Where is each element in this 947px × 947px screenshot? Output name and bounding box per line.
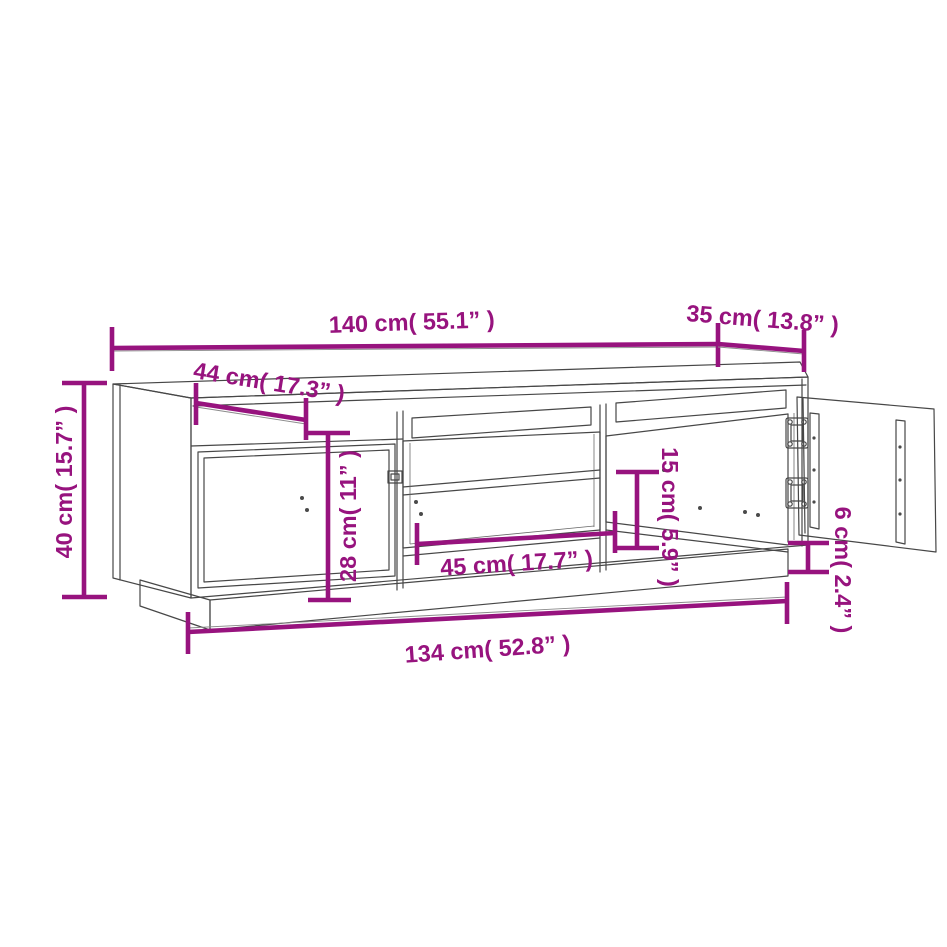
dim-label-overall-height: 40 cm( 15.7” ): [51, 406, 77, 559]
dim-label-base-width: 134 cm( 52.8” ): [404, 630, 571, 668]
furniture-dimension-diagram: 140 cm( 55.1” ) 35 cm( 13.8” ) 44 cm( 17…: [0, 0, 947, 947]
cabinet-drawing: [113, 362, 936, 630]
dim-label-right-inner-height: 15 cm( 5.9” ): [657, 447, 683, 587]
diagram-canvas: 140 cm( 55.1” ) 35 cm( 13.8” ) 44 cm( 17…: [0, 0, 947, 947]
dimension-right-inner-height: 15 cm( 5.9” ): [613, 447, 683, 587]
dimension-top-right-depth: 35 cm( 13.8” ): [685, 300, 839, 372]
cabinet-left-side: [113, 384, 191, 598]
dimension-overall-height: 40 cm( 15.7” ): [51, 383, 107, 597]
dimension-left-top-depth: 44 cm( 17.3” ): [192, 357, 347, 440]
right-compartment: [606, 413, 794, 552]
dim-label-base-height: 6 cm( 2.4” ): [830, 507, 856, 634]
dim-label-left-inner-height: 28 cm( 11” ): [335, 450, 361, 582]
dimension-base-width: 134 cm( 52.8” ): [188, 582, 787, 668]
dimension-base-height: 6 cm( 2.4” ): [788, 507, 856, 634]
dim-label-top-right-depth: 35 cm( 13.8” ): [685, 300, 839, 338]
dim-label-top-width: 140 cm( 55.1” ): [328, 306, 495, 338]
left-door: [198, 444, 402, 588]
dim-label-left-top-depth: 44 cm( 17.3” ): [192, 357, 347, 407]
